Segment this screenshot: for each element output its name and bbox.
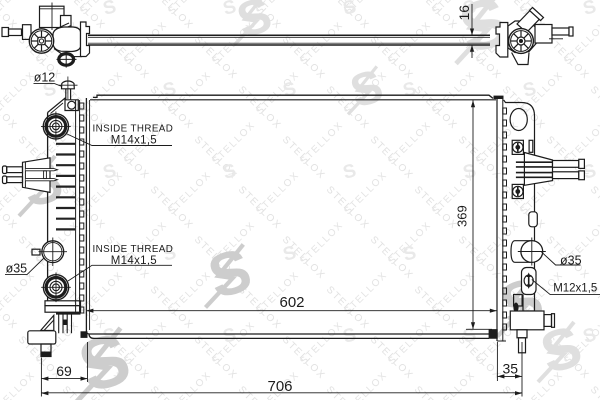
- svg-text:602: 602: [280, 294, 305, 311]
- svg-text:M12x1,5: M12x1,5: [553, 282, 597, 294]
- svg-text:706: 706: [268, 378, 293, 395]
- svg-text:INSIDE THREAD: INSIDE THREAD: [93, 123, 174, 134]
- svg-text:INSIDE THREAD: INSIDE THREAD: [93, 244, 174, 255]
- svg-text:369: 369: [455, 205, 470, 227]
- svg-text:69: 69: [56, 363, 72, 379]
- svg-text:ø35: ø35: [6, 262, 28, 276]
- svg-text:16: 16: [456, 5, 472, 21]
- svg-text:ø12: ø12: [34, 71, 56, 85]
- svg-text:35: 35: [503, 361, 519, 377]
- svg-text:M14x1,5: M14x1,5: [111, 134, 157, 146]
